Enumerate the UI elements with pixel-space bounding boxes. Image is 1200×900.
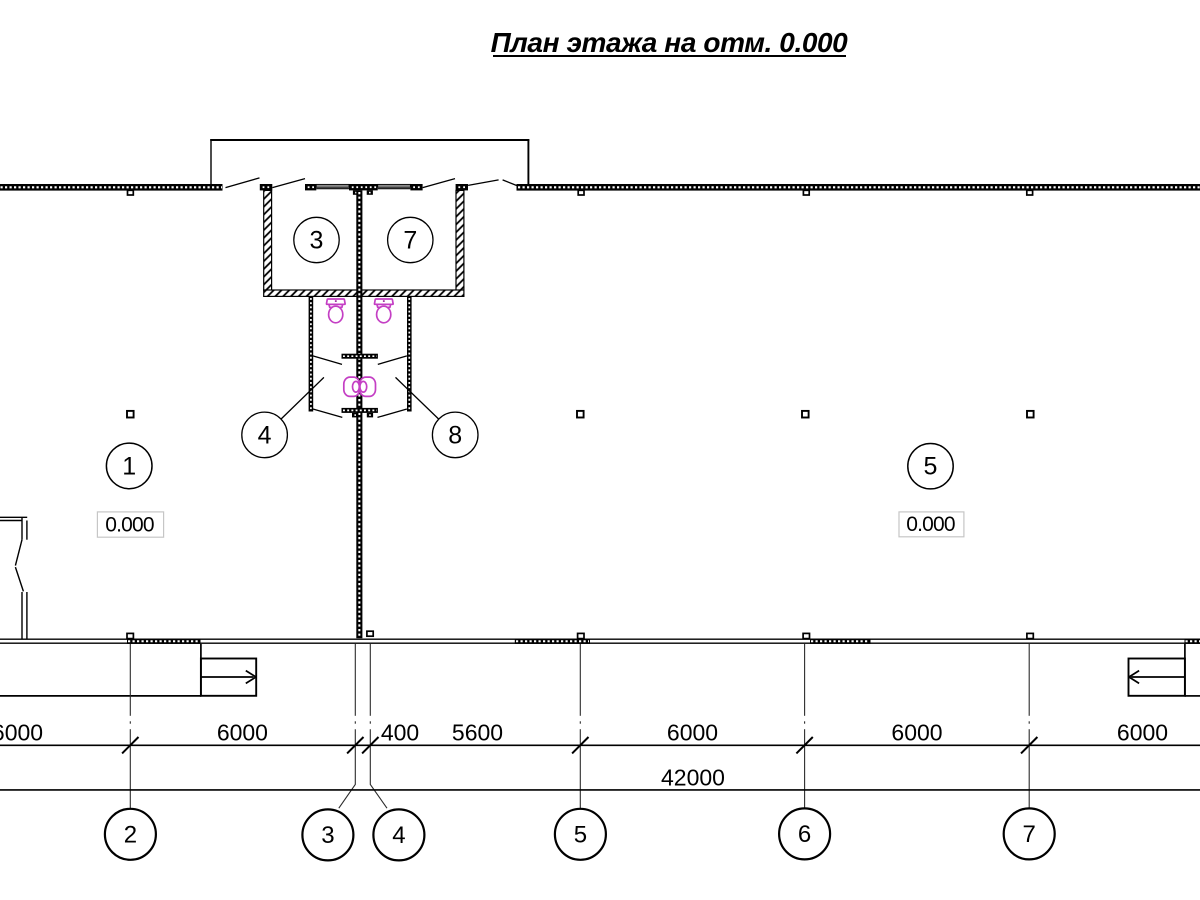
- svg-text:7: 7: [1023, 821, 1036, 848]
- svg-text:42000: 42000: [661, 765, 725, 791]
- svg-text:3: 3: [321, 822, 334, 849]
- svg-text:6000: 6000: [667, 720, 718, 746]
- svg-text:7: 7: [403, 227, 417, 255]
- svg-text:5: 5: [574, 822, 587, 849]
- svg-text:2: 2: [124, 822, 137, 849]
- svg-text:5: 5: [924, 453, 938, 481]
- svg-text:6000: 6000: [891, 720, 942, 746]
- svg-text:6000: 6000: [1117, 720, 1168, 746]
- svg-text:6: 6: [798, 821, 811, 848]
- svg-text:4: 4: [392, 822, 405, 849]
- svg-text:8: 8: [448, 422, 462, 450]
- svg-text:3: 3: [310, 227, 324, 255]
- svg-text:0.000: 0.000: [906, 513, 955, 536]
- svg-text:6000: 6000: [0, 720, 43, 746]
- svg-text:0.000: 0.000: [105, 513, 154, 536]
- svg-text:План этажа на отм. 0.000: План этажа на отм. 0.000: [491, 27, 849, 58]
- svg-text:400: 400: [381, 720, 419, 746]
- svg-text:4: 4: [258, 422, 272, 450]
- svg-text:1: 1: [122, 452, 136, 480]
- svg-text:5600: 5600: [452, 720, 503, 746]
- svg-text:6000: 6000: [217, 720, 268, 746]
